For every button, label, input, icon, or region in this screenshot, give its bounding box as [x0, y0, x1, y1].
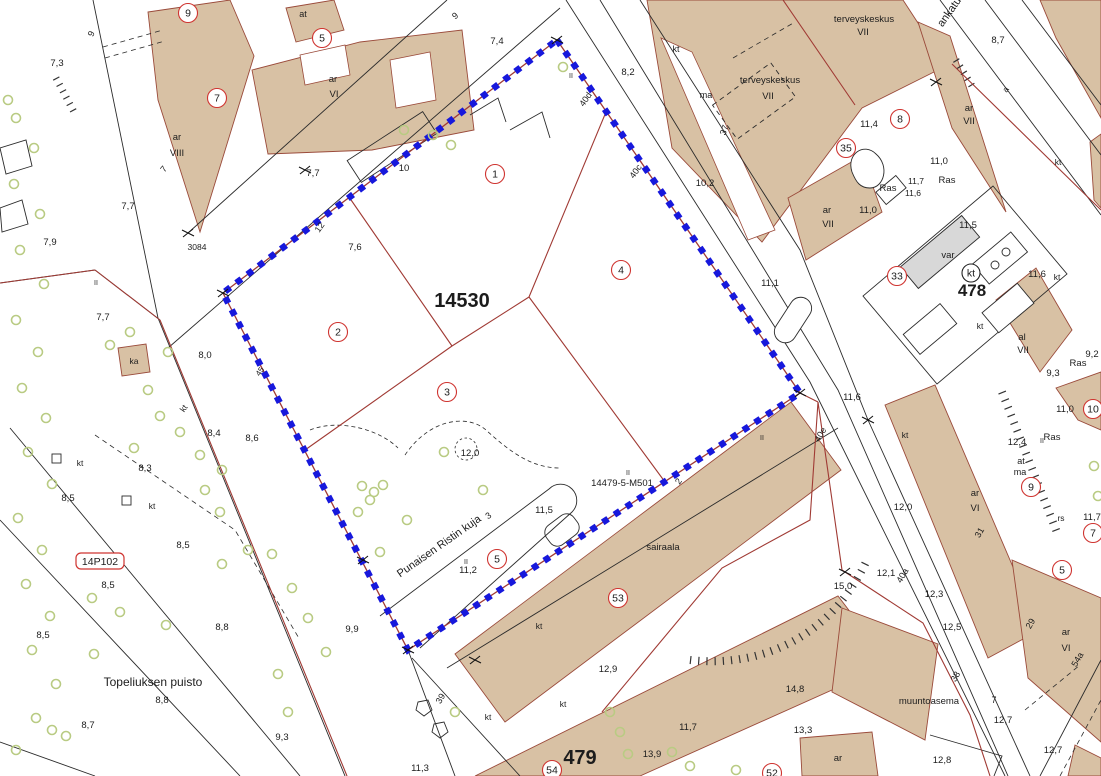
boxed-labels-layer: 14P102 [76, 553, 124, 569]
map-label: 7,7 [96, 312, 109, 323]
map-label: kt [1055, 157, 1062, 167]
map-label: Ras [880, 183, 897, 194]
map-label: 478 [958, 281, 986, 300]
map-label: 11,2 [459, 565, 477, 576]
map-label: 11,0 [1056, 404, 1074, 415]
map-label: 8,5 [101, 580, 114, 591]
map-label: kt [485, 712, 492, 722]
map-label: 8,8 [215, 622, 228, 633]
map-label: II [626, 470, 630, 477]
map-label: VII [1017, 345, 1029, 356]
map-label: 9,3 [1046, 368, 1059, 379]
map-label: ma [1014, 467, 1027, 477]
map-label: 7 [991, 695, 996, 705]
courtyard [390, 52, 436, 108]
map-label: kt [77, 458, 84, 468]
parcel-number: 5 [1059, 565, 1065, 577]
parcel-number: 7 [1090, 528, 1096, 540]
map-label: 11,0 [859, 205, 877, 216]
map-label: 12,9 [599, 664, 618, 675]
map-label: 12,1 [877, 568, 896, 579]
map-label: 14,8 [786, 684, 805, 695]
map-label: 13,3 [794, 725, 813, 736]
parcel-number: 9 [185, 8, 191, 20]
map-label: 11,7 [679, 722, 697, 733]
map-label: II [94, 280, 98, 287]
map-label: ar [834, 753, 842, 764]
map-label: 7,3 [50, 58, 63, 69]
map-label: rs [1057, 513, 1064, 523]
map-label: 8,7 [991, 35, 1004, 46]
parcel-number: 2 [335, 327, 341, 339]
map-label: 10,2 [696, 178, 715, 189]
map-label: 11,5 [535, 505, 553, 516]
map-label: 12,5 [943, 622, 962, 633]
parcel-number: 54 [546, 765, 558, 776]
map-label: Topeliuksen puisto [104, 675, 203, 689]
map-label: var [941, 250, 954, 261]
map-label: 8,4 [207, 428, 220, 439]
map-label: Ras [939, 175, 956, 186]
map-label: ar [1062, 627, 1070, 638]
cadastral-map: 14P102 957123453583310975535452kt 7,397,… [0, 0, 1101, 776]
map-label: ar [173, 132, 181, 143]
parcel-number: 35 [840, 143, 852, 155]
map-label: 9,3 [275, 732, 288, 743]
plan-id-label: 14P102 [82, 556, 118, 568]
map-label: 8,0 [198, 350, 211, 361]
map-label: ar [329, 74, 337, 85]
map-label: 12,0 [461, 448, 480, 459]
map-label: 15,0 [834, 581, 853, 592]
map-label: II [1040, 438, 1044, 445]
map-label: 12,7 [1044, 745, 1063, 756]
map-label: terveyskeskus [834, 14, 894, 25]
map-label: 8,7 [81, 720, 94, 731]
map-label: VII [762, 91, 774, 102]
map-label: 7,7 [121, 201, 134, 212]
map-label: ar [823, 205, 831, 216]
map-label: 8,6 [245, 433, 258, 444]
parcel-number: 1 [492, 169, 498, 181]
map-label: kt [149, 501, 156, 511]
map-label: al [1018, 332, 1025, 343]
parcel-number: 53 [612, 593, 624, 605]
map-label: VIII [170, 148, 184, 159]
map-label: 14479-5-M501 [591, 478, 653, 489]
map-label: 11,6 [843, 392, 861, 403]
map-label: at [299, 9, 307, 19]
map-label: 13,9 [643, 749, 662, 760]
map-label: 9,2 [1085, 349, 1098, 360]
map-label: kt [902, 430, 909, 440]
map-label: VI [971, 503, 980, 514]
parcel-number: 9 [1028, 482, 1034, 494]
map-label: 11,6 [1028, 269, 1046, 280]
map-label: VII [963, 116, 975, 127]
map-label: 3084 [188, 242, 207, 252]
parcel-number: 33 [891, 271, 903, 283]
map-label: kt [977, 321, 984, 331]
map-label: muuntoasema [899, 696, 960, 707]
parcel-number: 8 [897, 114, 903, 126]
map-label: II [464, 559, 468, 566]
map-label: 8,5 [36, 630, 49, 641]
map-label: terveyskeskus [740, 75, 800, 86]
map-label: at [1017, 456, 1025, 466]
map-label: VII [857, 27, 869, 38]
map-label: 8,5 [176, 540, 189, 551]
map-label: sairaala [646, 542, 680, 553]
map-label: ar [971, 488, 979, 499]
map-label: 9,9 [345, 624, 358, 635]
map-label: II [760, 435, 764, 442]
map-label: 11,6 [905, 188, 921, 198]
map-label: 11,1 [761, 278, 779, 289]
map-label: 7,4 [490, 36, 503, 47]
map-label: 12,8 [933, 755, 952, 766]
parcel-number: 5 [319, 33, 325, 45]
map-label: II [569, 73, 573, 80]
map-label: kt [536, 621, 543, 631]
map-label: 11,7 [908, 176, 924, 186]
map-viewport: 14P102 957123453583310975535452kt 7,397,… [0, 0, 1101, 776]
map-label: 14530 [434, 290, 490, 312]
map-label: Ras [1070, 358, 1087, 369]
map-label: 11,3 [411, 763, 429, 774]
map-label: 10 [399, 163, 410, 174]
map-label: 12,7 [994, 715, 1013, 726]
parcel-number: kt [967, 268, 975, 280]
parcel-number: 10 [1087, 404, 1099, 416]
map-label: Ras [1044, 432, 1061, 443]
map-label: 12,0 [894, 502, 913, 513]
parcel-number: 4 [618, 265, 624, 277]
map-label: ma [700, 90, 713, 100]
map-label: 8,5 [61, 493, 74, 504]
map-label: VII [822, 219, 834, 230]
map-label: 8,2 [621, 67, 634, 78]
map-label: VI [1062, 643, 1071, 654]
map-label: 11,5 [959, 220, 977, 231]
map-label: 7,6 [348, 242, 361, 253]
parcel-number: 7 [214, 93, 220, 105]
map-label: 8,3 [138, 463, 151, 474]
map-label: 479 [563, 747, 596, 769]
map-label: 11,0 [930, 156, 948, 167]
map-label: ar [965, 103, 973, 114]
map-label: 7,9 [43, 237, 56, 248]
map-label: 11,4 [860, 119, 878, 130]
map-label: 7,7 [306, 168, 319, 179]
parcel-number: 52 [766, 768, 778, 776]
map-label: VI [330, 89, 339, 100]
map-label: 12,4 [1008, 437, 1027, 448]
map-label: 11,7 [1083, 512, 1101, 523]
map-label: kt [672, 44, 680, 54]
map-label: kt [560, 699, 567, 709]
map-label: ka [130, 356, 139, 366]
map-label: 8,8 [155, 695, 168, 706]
map-label: 12,3 [925, 589, 944, 600]
parcel-number: 5 [494, 554, 500, 566]
map-label: kt [1054, 272, 1061, 282]
parcel-number: 3 [444, 387, 450, 399]
